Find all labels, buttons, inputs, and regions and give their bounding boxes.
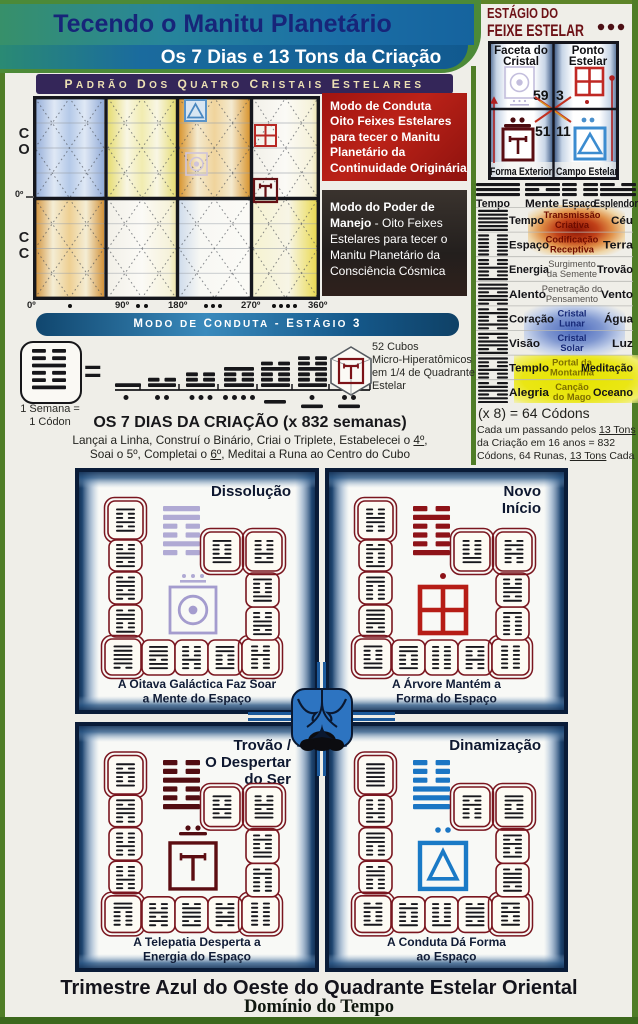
svg-text:Campo Estelar: Campo Estelar (556, 166, 619, 178)
svg-text:A Conduta Dá Forma: A Conduta Dá Forma (387, 935, 506, 949)
svg-text:Mente: Mente (525, 198, 559, 210)
svg-text:Estelar: Estelar (569, 56, 608, 68)
svg-text:Trovão: Trovão (597, 264, 633, 276)
svg-text:Penetração do: Penetração do (542, 284, 602, 294)
svg-text:Energia: Energia (509, 264, 550, 276)
svg-text:A Árvore Mantém a: A Árvore Mantém a (392, 676, 501, 691)
svg-text:Oceano: Oceano (593, 387, 633, 399)
svg-text:O Despertar: O Despertar (205, 754, 291, 771)
svg-text:Tempo: Tempo (476, 198, 510, 210)
svg-text:Esplendor: Esplendor (594, 198, 638, 210)
svg-text:Alento: Alento (509, 289, 546, 301)
svg-text:Novo: Novo (504, 483, 542, 500)
svg-text:Canção: Canção (555, 382, 589, 392)
svg-text:Terra: Terra (603, 240, 634, 252)
svg-text:ao Espaço: ao Espaço (416, 950, 476, 964)
svg-text:Energia do Espaço: Energia do Espaço (143, 950, 251, 964)
svg-text:Lunar: Lunar (559, 318, 585, 328)
svg-text:Transmissão: Transmissão (544, 210, 601, 220)
svg-text:Solar: Solar (560, 343, 584, 353)
svg-text:3: 3 (556, 87, 564, 103)
svg-text:a Mente do Espaço: a Mente do Espaço (143, 692, 252, 706)
svg-text:Cristal: Cristal (558, 308, 587, 318)
svg-text:51: 51 (535, 123, 551, 139)
svg-text:Trovão /: Trovão / (233, 737, 291, 754)
svg-text:ESTÁGIO DO: ESTÁGIO DO (487, 5, 558, 22)
svg-text:Cristal: Cristal (503, 56, 539, 68)
svg-text:Forma Exterior: Forma Exterior (490, 166, 553, 178)
svg-text:do Mago: do Mago (553, 392, 592, 402)
svg-text:do Ser: do Ser (244, 771, 291, 788)
svg-text:Surgimento: Surgimento (548, 259, 596, 269)
svg-text:Pensamento: Pensamento (546, 294, 598, 304)
svg-text:da Semente: da Semente (547, 269, 597, 279)
svg-text:Espaço: Espaço (562, 198, 596, 210)
svg-text:FEIXE ESTELAR: FEIXE ESTELAR (487, 22, 584, 40)
svg-text:Templo: Templo (509, 363, 549, 375)
svg-text:Espaço: Espaço (509, 240, 549, 252)
svg-text:Alegria: Alegria (509, 387, 550, 399)
svg-text:Luz: Luz (612, 338, 633, 350)
svg-text:Forma do Espaço: Forma do Espaço (396, 692, 497, 706)
svg-text:Receptiva: Receptiva (550, 245, 595, 255)
svg-text:Coração: Coração (509, 313, 554, 325)
svg-text:Visão: Visão (509, 338, 540, 350)
svg-text:Tempo: Tempo (509, 215, 544, 227)
svg-text:Dinamização: Dinamização (449, 737, 541, 754)
svg-text:Cristal: Cristal (558, 333, 587, 343)
svg-text:Codificação: Codificação (546, 235, 599, 245)
svg-text:Água: Água (604, 312, 634, 325)
svg-text:Meditação: Meditação (581, 363, 633, 375)
svg-text:Criativa: Criativa (555, 220, 590, 230)
svg-text:Vento: Vento (601, 289, 633, 301)
svg-text:A Telepatia Desperta a: A Telepatia Desperta a (133, 935, 261, 949)
svg-text:Dissolução: Dissolução (211, 483, 291, 500)
svg-text:Início: Início (502, 500, 541, 517)
svg-text:A Oitava Galáctica Faz Soar: A Oitava Galáctica Faz Soar (118, 677, 277, 691)
svg-text:11: 11 (556, 123, 571, 139)
svg-text:Céu: Céu (611, 215, 633, 227)
